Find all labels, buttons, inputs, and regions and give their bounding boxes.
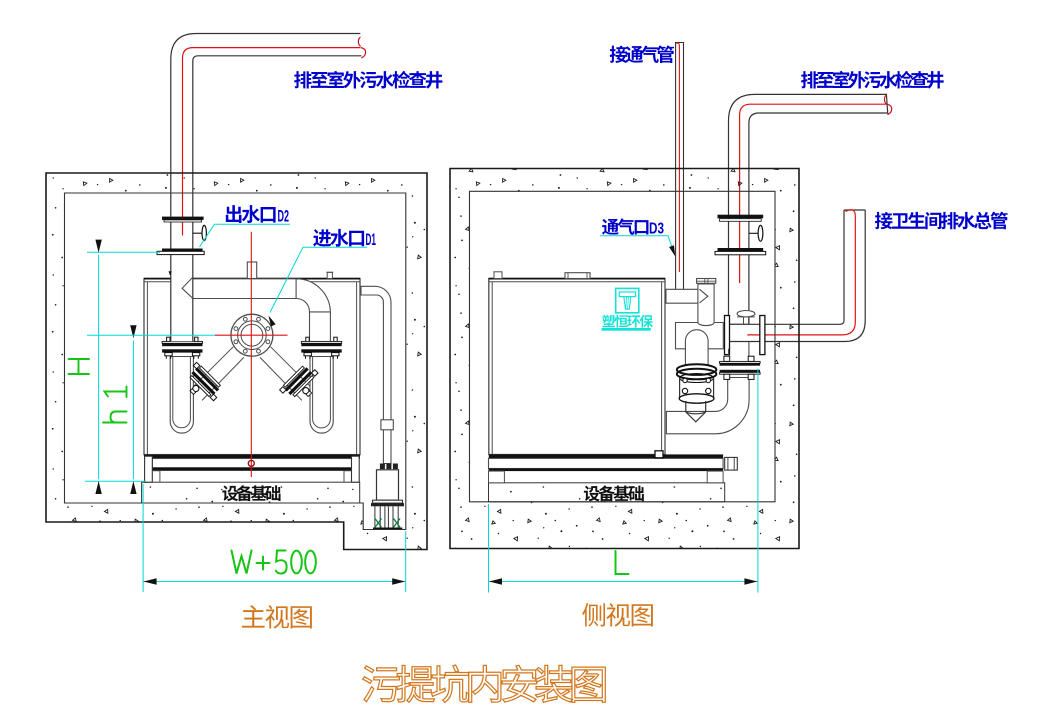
svg-text:D3: D3: [649, 220, 664, 237]
svg-text:D2: D2: [278, 207, 290, 225]
svg-text:D1: D1: [366, 231, 377, 249]
